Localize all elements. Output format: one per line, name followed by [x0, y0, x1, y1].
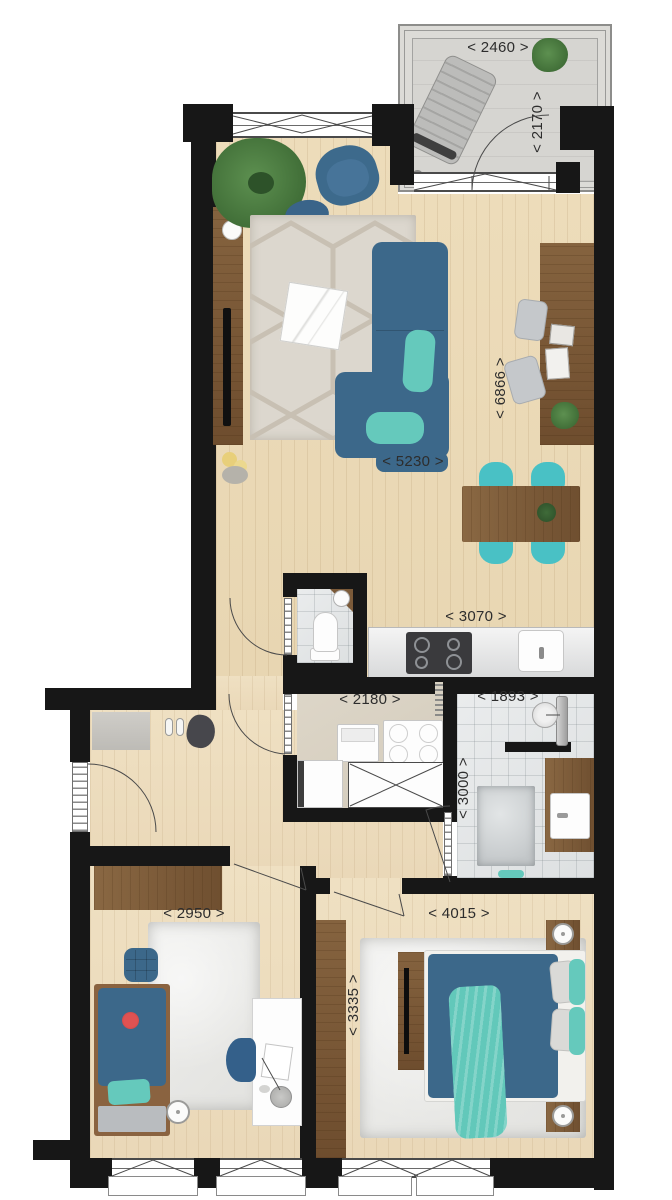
wall-outer-left-upper — [70, 710, 90, 762]
wc-door-leaf — [284, 598, 292, 655]
vanity-faucet-icon — [557, 813, 568, 818]
wall-right — [594, 145, 614, 1190]
pillow-teal — [569, 1007, 585, 1055]
balcony-door — [414, 172, 556, 192]
wall-top-right — [560, 106, 614, 150]
storage-door-leaf — [284, 694, 292, 754]
entrance-door-leaf — [72, 762, 88, 832]
storage-wall-left — [283, 755, 297, 808]
washing-machine — [297, 760, 343, 808]
window-sill — [216, 1176, 306, 1196]
bedroom-divider-wall — [300, 866, 316, 1158]
window-sill — [338, 1176, 412, 1196]
tv-bench — [398, 952, 424, 1070]
shower-head — [532, 702, 558, 728]
doormat — [92, 712, 150, 750]
child-wall-top — [70, 846, 230, 866]
washer-dryer-unit — [383, 720, 443, 766]
desk-mouse-icon — [259, 1085, 270, 1093]
wall-balcony-right-pier — [556, 162, 580, 193]
master-wardrobe — [316, 920, 346, 1158]
master-wall-top-left — [300, 878, 330, 894]
living-window-top — [233, 112, 372, 138]
dim-bedroom-master-width: < 4015 > — [419, 906, 499, 922]
floor-plan: < 2460 > < 2170 > < 6866 > < 5230 > < 30… — [0, 0, 672, 1200]
dim-living-width: < 5230 > — [373, 454, 453, 470]
ladybug-toy-icon — [122, 1012, 139, 1029]
window-frame-line — [112, 1168, 194, 1169]
armchair-seat — [323, 155, 373, 201]
washer-panel — [298, 761, 304, 807]
sofa-cushion-teal — [402, 329, 436, 393]
child-round-lamp — [166, 1100, 190, 1124]
wall-outer-left-lower — [70, 832, 90, 1158]
window-frame-line — [342, 1168, 490, 1169]
child-desk-chair — [226, 1038, 256, 1082]
window-frame-line — [220, 1168, 302, 1169]
pouf-seam — [126, 959, 156, 960]
storage-wall-bottom — [283, 808, 457, 822]
wall-bottom-c — [302, 1158, 342, 1188]
child-desk-lamp — [270, 1086, 292, 1108]
vanity-sink — [550, 793, 590, 839]
magazine — [545, 347, 570, 380]
drum-icon — [389, 724, 408, 743]
wc-wall-right — [353, 573, 367, 677]
dim-balcony-depth: < 2170 > — [530, 82, 546, 162]
vent-strip — [435, 682, 443, 716]
wall-bottom-a — [70, 1158, 112, 1188]
nightstand-lamp — [552, 923, 574, 945]
flower-vase — [222, 466, 248, 484]
nightstand-lamp — [552, 1105, 574, 1127]
wall-bottom-d — [490, 1158, 614, 1188]
child-bed-pillow — [107, 1079, 151, 1106]
appliance-lid — [341, 728, 375, 742]
table-plant — [537, 503, 556, 522]
wall-top-left — [183, 104, 233, 142]
cooktop — [406, 632, 472, 674]
child-bed — [94, 984, 170, 1136]
dining-table — [462, 486, 580, 542]
burner-icon — [415, 656, 428, 669]
teal-throw — [448, 985, 508, 1140]
burner-icon — [446, 654, 462, 670]
wc-wall-left-bottom — [283, 655, 297, 677]
dim-living-length: < 6866 > — [493, 348, 509, 428]
child-window-1 — [112, 1158, 194, 1178]
wc-corner-sink — [333, 590, 350, 607]
corridor-floor — [216, 676, 283, 712]
window-frame-line — [233, 125, 372, 126]
wall-balcony-left-pier — [390, 125, 414, 185]
child-bed-foot-mat — [98, 1106, 166, 1132]
shoes-icon — [165, 718, 173, 736]
child-window-2 — [220, 1158, 302, 1178]
bath-mat — [477, 786, 535, 866]
burner-icon — [414, 637, 430, 653]
bathroom-door-leaf — [444, 812, 452, 876]
master-bed — [424, 950, 586, 1102]
child-wardrobe — [94, 866, 222, 910]
dim-bathroom-length: < 3000 > — [456, 748, 472, 828]
window-sill — [108, 1176, 198, 1196]
dim-bathroom-width: < 1893 > — [468, 689, 548, 705]
shower-column — [556, 696, 568, 746]
wall-hall-top — [45, 688, 191, 710]
sofa-cushion-teal — [366, 412, 424, 444]
faucet-icon — [539, 647, 544, 659]
technical-unit — [348, 762, 444, 808]
dim-balcony-width: < 2460 > — [458, 40, 538, 56]
child-bed-duvet — [98, 988, 166, 1086]
magazine — [549, 324, 575, 346]
pouf-seam — [135, 950, 136, 980]
dim-kitchen-width: < 3070 > — [436, 609, 516, 625]
master-wall-top-right — [402, 878, 614, 894]
desk-stool — [513, 298, 548, 342]
dim-bedroom-child-width: < 2950 > — [154, 906, 234, 922]
desk-paper — [261, 1043, 293, 1081]
wc-wall-left-top — [283, 573, 297, 597]
balcony-door-line — [414, 182, 556, 183]
pouf-seam — [146, 950, 147, 980]
bathroom-towel — [498, 870, 524, 878]
master-window — [342, 1158, 490, 1178]
kitchen-sink — [518, 630, 564, 672]
drum-icon — [419, 724, 438, 743]
living-plant-core — [248, 172, 274, 194]
coffee-table — [280, 282, 349, 351]
tv-on-sideboard — [223, 308, 231, 426]
window-sill — [416, 1176, 494, 1196]
dim-storage-width: < 2180 > — [330, 692, 410, 708]
tv-icon — [404, 968, 409, 1054]
toilet-bowl — [313, 612, 338, 652]
child-pouf — [124, 948, 158, 982]
shoes-icon — [176, 718, 184, 736]
pouf-seam — [126, 970, 156, 971]
dim-bedroom-master-length: < 3335 > — [346, 965, 362, 1045]
appliance-box — [337, 724, 379, 762]
pillow-teal — [569, 959, 585, 1005]
burner-icon — [447, 638, 460, 651]
wall-bottom-left-step — [33, 1140, 70, 1160]
